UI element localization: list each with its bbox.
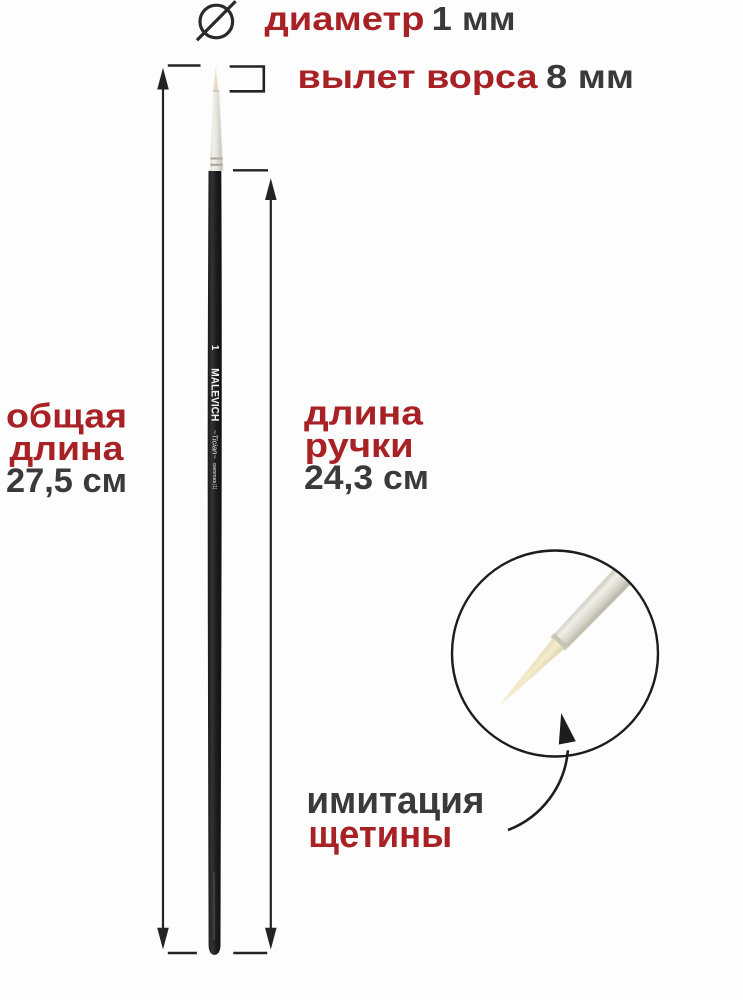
svg-text:MALEVICH: MALEVICH [209, 368, 221, 421]
svg-text:27,5 см: 27,5 см [6, 462, 127, 500]
svg-text:вылет ворса: вылет ворса [298, 58, 539, 95]
svg-text:8 мм: 8 мм [546, 58, 634, 95]
svg-text:диаметр: диаметр [265, 0, 425, 37]
svg-text:щетины: щетины [308, 814, 452, 856]
svg-text:1: 1 [209, 345, 220, 351]
svg-text:24,3 см: 24,3 см [304, 459, 429, 497]
svg-text:синтетика |1|: синтетика |1| [211, 463, 217, 489]
svg-text:1 мм: 1 мм [432, 0, 516, 37]
svg-text:~Tician~: ~Tician~ [210, 430, 219, 460]
